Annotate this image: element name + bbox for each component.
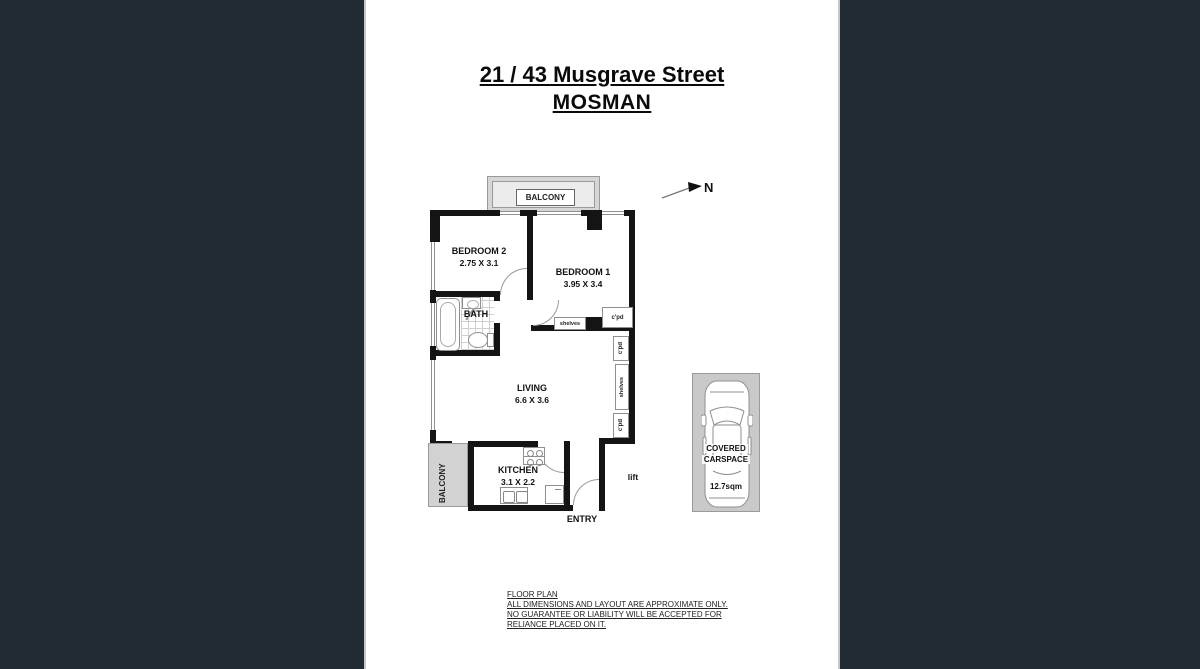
balcony-left-label: BALCONY (438, 449, 447, 503)
window (500, 211, 520, 215)
wall-bottom (468, 505, 573, 511)
north-label: N (704, 180, 713, 195)
entry-label: ENTRY (562, 513, 602, 525)
bedroom2-dims: 2.75 X 3.1 (439, 257, 519, 269)
wall-block (586, 317, 602, 331)
bath-label: BATH (456, 308, 496, 320)
living-name: LIVING (492, 382, 572, 394)
toilet-cistern (487, 333, 494, 347)
shelves-label: shelves (619, 377, 625, 397)
window (431, 303, 435, 346)
disclaimer-line-4: RELIANCE PLACED ON IT. (507, 620, 728, 630)
disclaimer-line-3: NO GUARANTEE OR LIABILITY WILL BE ACCEPT… (507, 610, 728, 620)
kitchen-sink (500, 487, 528, 504)
bedroom1-label: BEDROOM 1 3.95 X 3.4 (538, 266, 628, 290)
sliding-door (537, 211, 581, 215)
balcony-top: BALCONY (487, 176, 600, 212)
door-arc-entry (573, 479, 599, 505)
carspace-title-line2: CARSPACE (693, 455, 759, 464)
window (602, 211, 624, 215)
bedroom2-label: BEDROOM 2 2.75 X 3.1 (439, 245, 519, 269)
bathtub (436, 298, 460, 351)
wall-kitchen-left (468, 441, 474, 511)
living-label: LIVING 6.6 X 3.6 (492, 382, 572, 406)
window (431, 360, 435, 430)
floorplan-page: 21 / 43 Musgrave Street MOSMAN N BALCONY (364, 0, 840, 669)
shelves-box-side: shelves (615, 364, 629, 410)
cupboard-box-lower: c'pd (613, 413, 629, 438)
letterbox-backdrop: 21 / 43 Musgrave Street MOSMAN N BALCONY (0, 0, 1200, 669)
disclaimer-line-2: ALL DIMENSIONS AND LAYOUT ARE APPROXIMAT… (507, 600, 728, 610)
page-title: 21 / 43 Musgrave Street (366, 62, 838, 88)
shelves-box-bedroom1: shelves (554, 317, 586, 330)
wall (564, 441, 570, 511)
kitchen-dims: 3.1 X 2.2 (478, 476, 558, 488)
living-dims: 6.6 X 3.6 (492, 394, 572, 406)
page-subtitle: MOSMAN (366, 91, 838, 115)
north-arrow-icon: N (660, 174, 714, 202)
wall-step-v (599, 438, 605, 511)
cpd-label: c'pd (611, 315, 623, 321)
wall (430, 210, 500, 216)
carspace-title-line1: COVERED (693, 444, 759, 453)
carspace: COVERED CARSPACE 12.7sqm (692, 373, 760, 512)
disclaimer-block: FLOOR PLAN ALL DIMENSIONS AND LAYOUT ARE… (507, 590, 728, 630)
wall-column (587, 216, 602, 230)
stove (523, 447, 545, 465)
door-arc-bedroom2 (500, 268, 527, 295)
cpd-label: c'pd (618, 419, 624, 431)
wall-bedroom-divider (527, 210, 533, 300)
disclaimer-line-1: FLOOR PLAN (507, 590, 728, 600)
lift-label: lift (621, 471, 645, 483)
toilet-bowl (468, 332, 488, 348)
bedroom1-name: BEDROOM 1 (538, 266, 628, 278)
wall-step-h (599, 438, 635, 444)
cupboard-box-bedroom1: c'pd (602, 307, 633, 328)
window (431, 242, 435, 292)
balcony-top-label: BALCONY (516, 189, 575, 206)
balcony-left: BALCONY (428, 443, 468, 507)
carspace-area: 12.7sqm (693, 482, 759, 491)
shelves-label: shelves (560, 321, 580, 327)
cpd-label: c'pd (618, 342, 624, 354)
cupboard-box-upper: c'pd (613, 336, 629, 361)
kitchen-label: KITCHEN 3.1 X 2.2 (478, 464, 558, 488)
bedroom1-dims: 3.95 X 3.4 (538, 278, 628, 290)
bedroom2-name: BEDROOM 2 (439, 245, 519, 257)
kitchen-name: KITCHEN (478, 464, 558, 476)
